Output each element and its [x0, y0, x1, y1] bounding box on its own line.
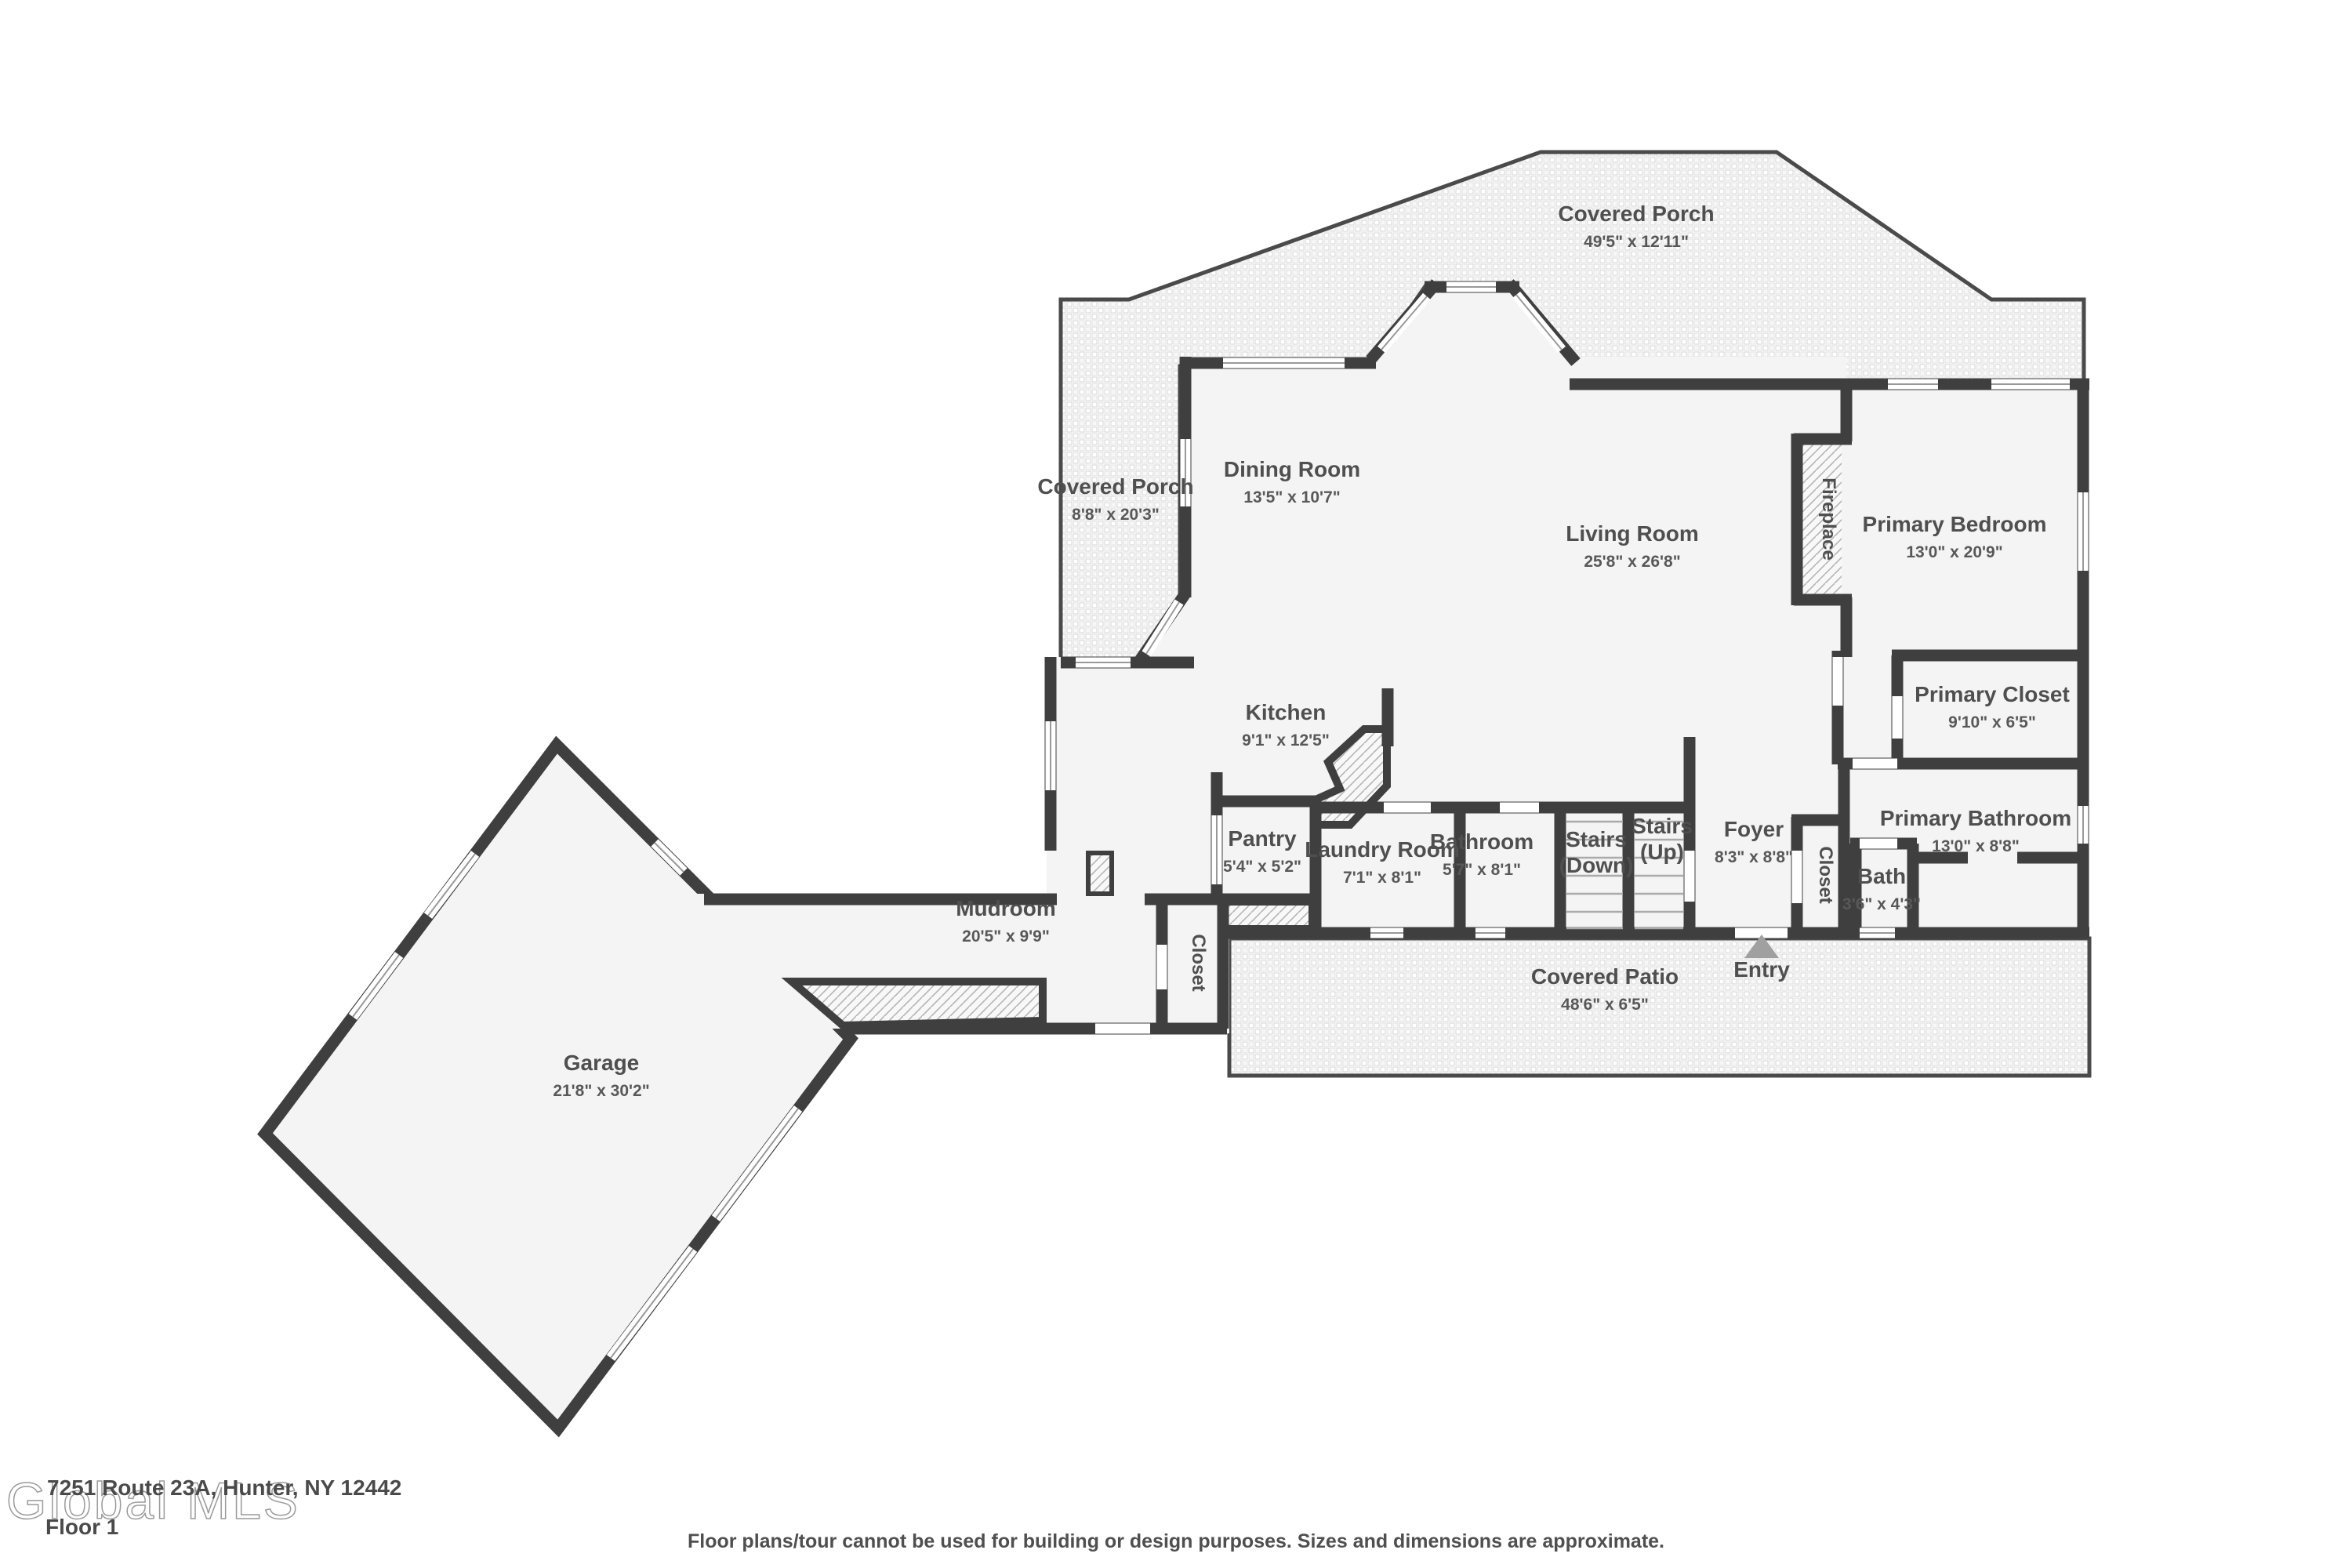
label-bath: Bath: [1857, 864, 1906, 888]
label-kitchen-dims: 9'1" x 12'5": [1242, 731, 1330, 750]
label-kitchen: Kitchen: [1246, 700, 1327, 724]
label-covered-porch-left: Covered Porch: [1037, 474, 1193, 499]
label-dining-room: Dining Room: [1224, 457, 1360, 481]
label-covered-porch-top: Covered Porch: [1558, 201, 1714, 226]
label-bath-dims: 3'6" x 4'3": [1842, 895, 1921, 913]
step-strip-hatch: [1223, 903, 1311, 927]
label-closet-foyer: Closet: [1815, 846, 1836, 903]
label-stairs-down-dims: (Down): [1559, 853, 1634, 877]
label-dining-room-dims: 13'5" x 10'7": [1243, 488, 1340, 506]
label-covered-patio-dims: 48'6" x 6'5": [1561, 996, 1649, 1014]
label-bathroom: Bathroom: [1430, 829, 1534, 854]
label-primary-closet: Primary Closet: [1915, 682, 2070, 706]
label-mudroom-dims: 20'5" x 9'9": [962, 927, 1050, 946]
label-primary-closet-dims: 9'10" x 6'5": [1948, 713, 2036, 731]
label-fireplace: Fireplace: [1818, 477, 1839, 560]
label-pantry: Pantry: [1228, 826, 1297, 851]
label-covered-patio: Covered Patio: [1531, 964, 1679, 989]
label-pantry-dims: 5'4" x 5'2": [1223, 858, 1301, 876]
label-mudroom: Mudroom: [956, 896, 1056, 920]
label-closet-mudroom: Closet: [1188, 934, 1209, 991]
label-entry: Entry: [1733, 957, 1790, 982]
label-stairs-down: Stairs: [1566, 827, 1627, 851]
label-stairs-up: Stairs: [1632, 814, 1693, 838]
floor-plan-page: { "footer": { "address": "7251 Route 23A…: [0, 0, 2352, 1568]
label-garage-dims: 21'8" x 30'2": [553, 1082, 649, 1100]
label-primary-bedroom-dims: 13'0" x 20'9": [1906, 543, 2002, 561]
covered-patio-area: [1229, 938, 2089, 1076]
label-stairs-up-dims: (Up): [1640, 840, 1684, 864]
label-bathroom-dims: 5'7" x 8'1": [1443, 861, 1521, 879]
label-garage: Garage: [564, 1051, 640, 1075]
small-step-hatch: [1088, 853, 1112, 894]
label-living-room-dims: 25'8" x 26'8": [1584, 553, 1680, 571]
label-primary-bathroom: Primary Bathroom: [1880, 806, 2071, 830]
floor-plan-svg: Covered Porch49'5" x 12'11"Covered Porch…: [0, 0, 2352, 1568]
mudroom-step-hatch: [792, 982, 1043, 1025]
label-covered-porch-top-dims: 49'5" x 12'11": [1584, 233, 1689, 251]
label-covered-porch-left-dims: 8'8" x 20'3": [1072, 506, 1160, 524]
property-address: 7251 Route 23A, Hunter, NY 12442: [47, 1475, 401, 1501]
label-foyer-dims: 8'3" x 8'8": [1715, 848, 1793, 866]
label-primary-bathroom-dims: 13'0" x 8'8": [1932, 837, 2020, 855]
label-living-room: Living Room: [1566, 521, 1699, 546]
label-laundry-room-dims: 7'1" x 8'1": [1343, 869, 1421, 887]
label-foyer: Foyer: [1724, 817, 1784, 841]
label-primary-bedroom: Primary Bedroom: [1863, 512, 2047, 536]
disclaimer-text: Floor plans/tour cannot be used for buil…: [0, 1530, 2352, 1553]
